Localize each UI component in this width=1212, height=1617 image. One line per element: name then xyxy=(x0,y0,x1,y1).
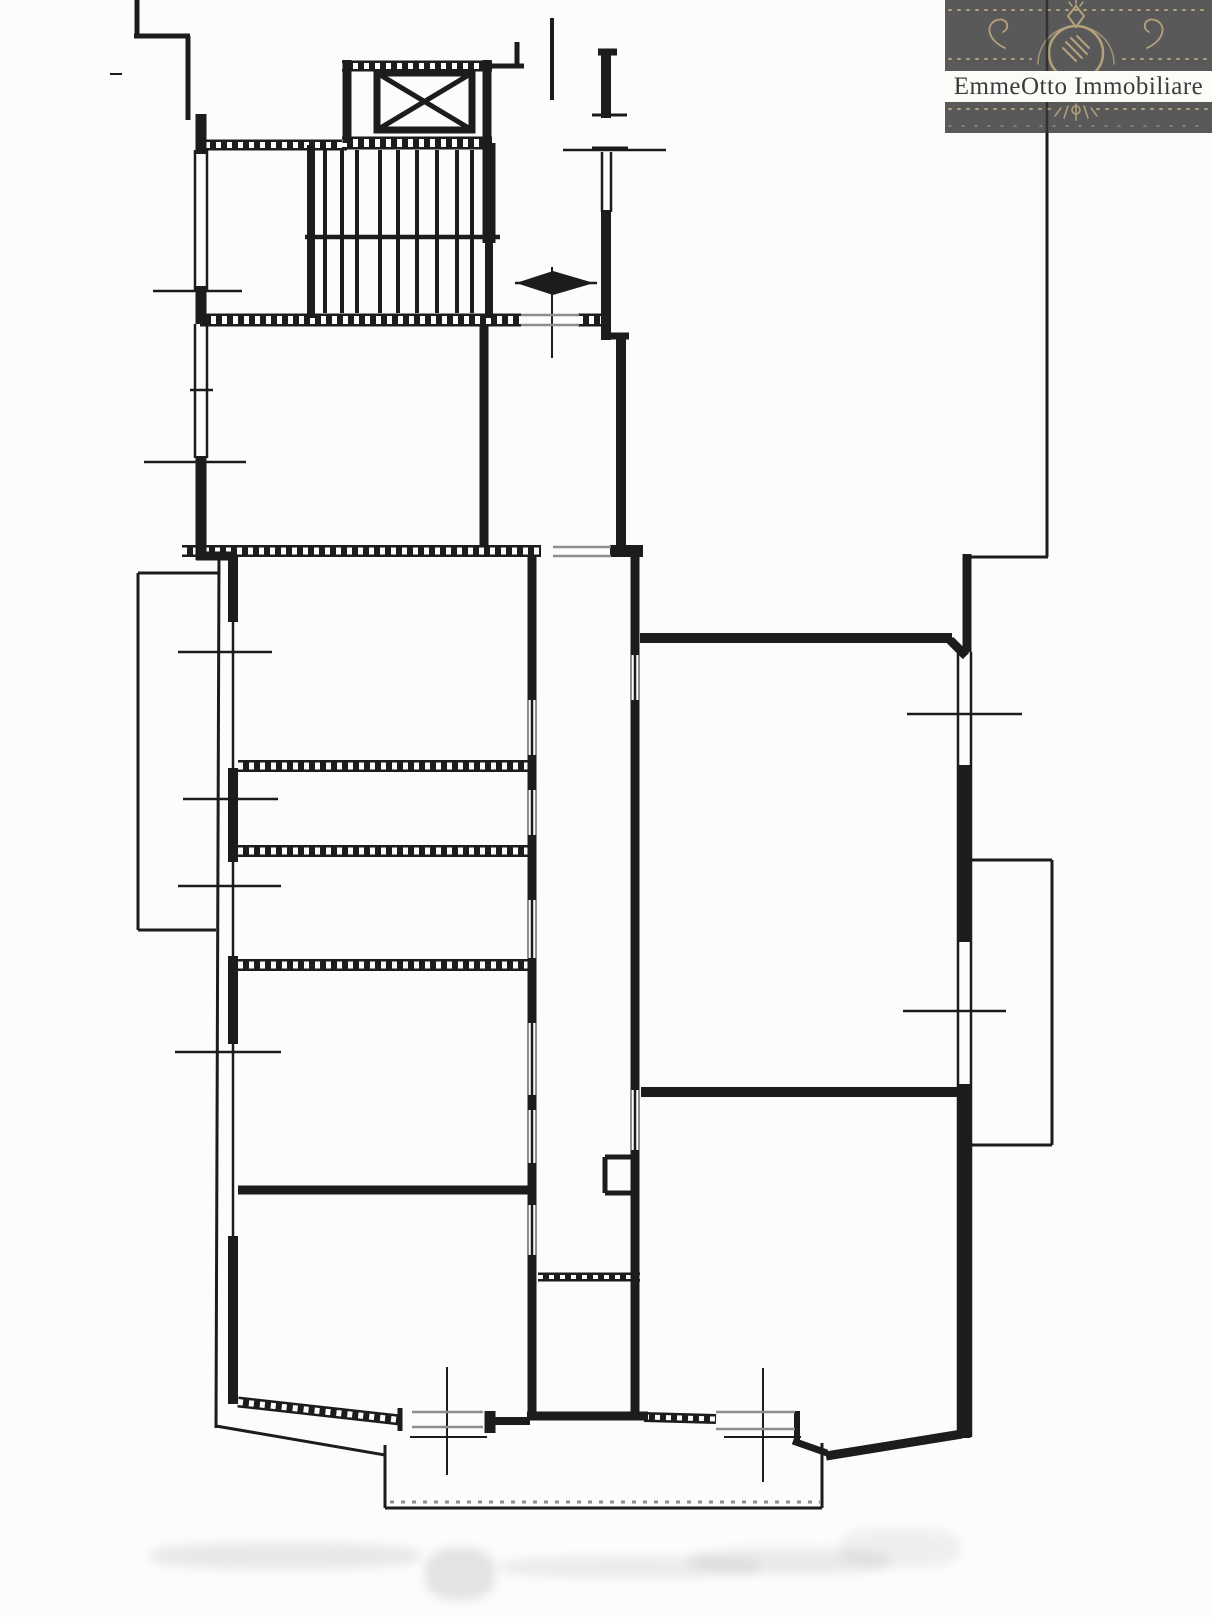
agency-name: EmmeOtto Immobiliare xyxy=(954,73,1204,101)
floorplan-page: EmmeOtto Immobiliare xyxy=(0,0,1212,1617)
elevator xyxy=(377,73,472,130)
floorplan-drawing xyxy=(0,0,1212,1617)
agency-logo-panel: EmmeOtto Immobiliare xyxy=(945,0,1212,133)
walls xyxy=(134,0,967,1456)
thin-lines xyxy=(110,74,1052,1508)
entrance-arrow xyxy=(516,271,594,295)
logo-text-band: EmmeOtto Immobiliare xyxy=(945,71,1212,102)
stair-treads xyxy=(325,150,472,313)
smudge-mark xyxy=(425,1548,495,1600)
door-openings xyxy=(390,315,820,1502)
smudge-mark xyxy=(150,1543,420,1569)
logo-ornament-icon xyxy=(945,0,1212,133)
smudge-mark xyxy=(840,1528,960,1568)
